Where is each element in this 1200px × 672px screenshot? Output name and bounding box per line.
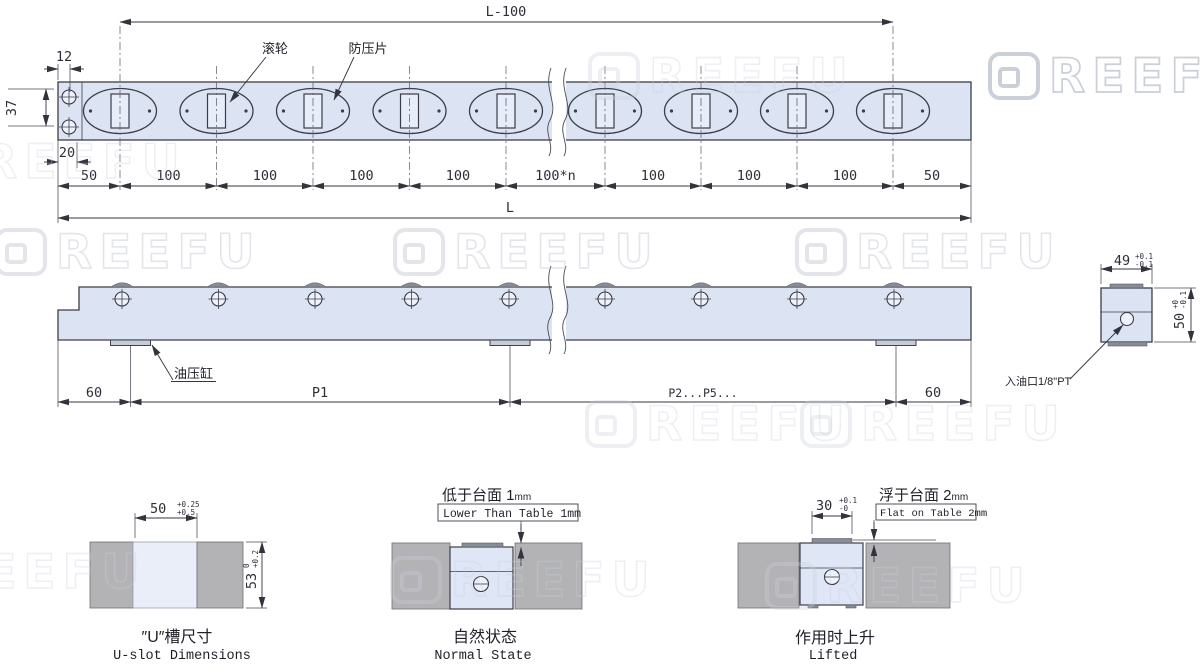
oil-port <box>1121 313 1134 326</box>
tolerance-lower: -0 <box>839 504 849 513</box>
bottom-lip-section <box>1108 342 1147 346</box>
tolerance-lower: -0.1 <box>1135 260 1153 269</box>
top-view: L-100 12 滚轮 防压片 37 20 50 100 100 100 100… <box>4 4 971 223</box>
tolerance-lower: +0.5 <box>177 508 195 517</box>
cylinder-leader <box>152 345 173 380</box>
detail-title-en: Normal State <box>434 649 531 664</box>
detail-uslot: 50 +0.25 +0.5 53 0 +0.2 ″U″槽尺寸 U-slot Di… <box>90 500 267 664</box>
dim-row-100: 100 <box>833 168 857 184</box>
dim-49: 49 <box>1114 253 1130 269</box>
dim-row-50: 50 <box>924 168 940 184</box>
dim-P1: P1 <box>312 385 328 401</box>
dim-L: L <box>506 200 514 216</box>
note-cn-text: 低于台面 1 <box>442 487 515 504</box>
dim-row-100: 100 <box>253 168 277 184</box>
table-block-right <box>197 542 243 608</box>
note-en: Flat on Table 2mm <box>880 508 987 520</box>
dim-60-left: 60 <box>86 385 102 401</box>
tolerance-lower: -0.1 <box>1179 291 1188 309</box>
roller-top <box>462 543 503 547</box>
u-slot <box>133 542 197 608</box>
dim-50: 50 <box>1172 313 1188 329</box>
roller-top-section <box>1110 284 1143 288</box>
hydraulic-cylinders <box>111 340 917 346</box>
dim-row-100: 100 <box>737 168 761 184</box>
roller-slots <box>84 89 930 134</box>
oil-port-leader <box>1070 325 1123 379</box>
detail-normal: 低于台面 1mm Lower Than Table 1mm 自然状态 Norma… <box>392 487 582 664</box>
tolerance-lower: +0.2 <box>251 550 260 568</box>
table-block-right <box>866 543 950 608</box>
dim-row-50: 50 <box>81 168 97 184</box>
table-block-right <box>515 543 582 609</box>
dim-row-100: 100 <box>349 168 373 184</box>
dim-L-100: L-100 <box>486 4 527 20</box>
side-view: 油压缸 60 P1 P2...P5... 60 <box>58 266 971 407</box>
section-view: 49 +0.1 -0.1 50 +0 -0.1 入油口1/8"PT <box>1005 252 1196 388</box>
detail-title-cn: ″U″槽尺寸 <box>142 628 213 646</box>
note-cn: 浮于台面 2mm <box>879 487 968 504</box>
roller-label: 滚轮 <box>262 41 288 56</box>
table-block-left <box>738 543 799 608</box>
note-cn-unit: mm <box>515 492 532 503</box>
dim-20: 20 <box>59 145 75 161</box>
dim-50: 50 <box>150 501 166 517</box>
dim-37: 37 <box>4 100 20 116</box>
dim-12: 12 <box>56 49 72 65</box>
dim-row-100: 100 <box>446 168 470 184</box>
detail-title-en: U-slot Dimensions <box>113 649 251 664</box>
table-block-left <box>90 542 133 608</box>
tolerance-upper: 0 <box>242 563 251 568</box>
cylinder-label: 油压缸 <box>174 366 213 381</box>
detail-lifted: 30 +0.1 -0 浮于台面 2mm Flat on Table 2mm 作用… <box>738 487 987 664</box>
oil-port-label: 入油口1/8"PT <box>1005 374 1072 388</box>
foot-left <box>808 605 818 608</box>
drawing-sheet: REEFU REEFU REEFU REEFU REEFU REEFU REEF… <box>0 0 1200 672</box>
detail-title-cn: 自然状态 <box>453 628 517 646</box>
dim-53: 53 <box>244 573 260 589</box>
cad-drawing: L-100 12 滚轮 防压片 37 20 50 100 100 100 100… <box>0 0 1200 672</box>
note-cn-text: 浮于台面 2 <box>879 487 952 504</box>
detail-title-en: Lifted <box>809 649 858 664</box>
dim-P2-P5: P2...P5... <box>668 386 737 400</box>
dim-row-100n: 100*n <box>535 168 576 184</box>
note-cn: 低于台面 1mm <box>442 487 531 504</box>
extension-lines <box>812 511 852 534</box>
dim-30: 30 <box>816 498 832 514</box>
dim-row-100: 100 <box>156 168 180 184</box>
foot-right <box>846 605 856 608</box>
note-cn-unit: mm <box>952 492 969 503</box>
detail-title-cn: 作用时上升 <box>795 629 875 647</box>
table-block-left <box>392 543 450 609</box>
roller-top <box>812 539 852 544</box>
dim-60-right: 60 <box>925 385 941 401</box>
dim-row-100: 100 <box>641 168 665 184</box>
note-en: Lower Than Table 1mm <box>443 508 581 521</box>
anti-press-plate-label: 防压片 <box>348 41 387 56</box>
